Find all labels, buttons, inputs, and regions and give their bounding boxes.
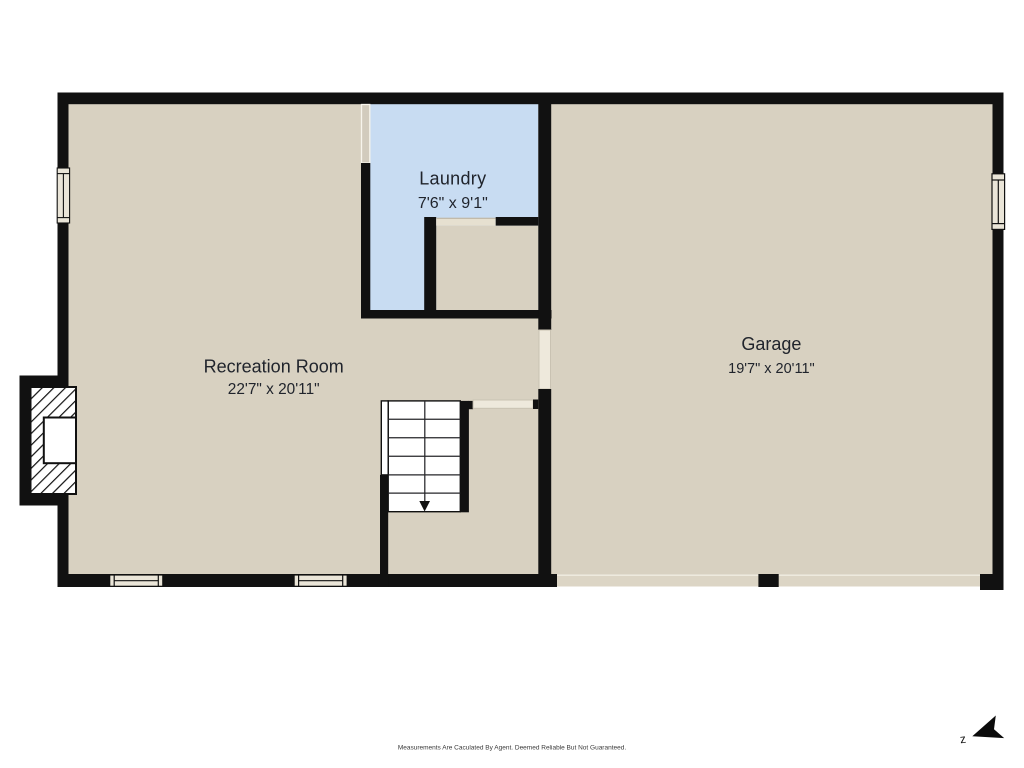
svg-text:Laundry: Laundry <box>419 169 486 189</box>
svg-text:Measurements Are Caculated By: Measurements Are Caculated By Agent. Dee… <box>398 744 627 751</box>
svg-text:z: z <box>959 732 967 747</box>
svg-text:Recreation Room: Recreation Room <box>204 356 344 376</box>
svg-text:19'7" x 20'11": 19'7" x 20'11" <box>728 361 815 377</box>
svg-text:22'7" x 20'11": 22'7" x 20'11" <box>228 381 320 398</box>
svg-text:7'6" x 9'1": 7'6" x 9'1" <box>418 195 488 212</box>
svg-text:Garage: Garage <box>741 334 801 354</box>
